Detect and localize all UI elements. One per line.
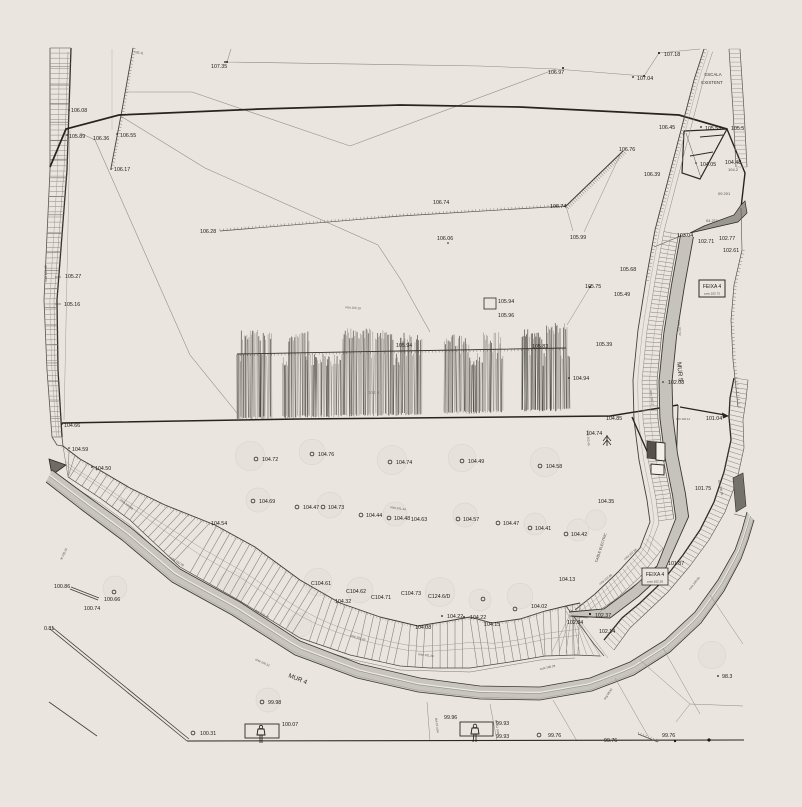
svg-text:cota 105.60: cota 105.60	[44, 265, 48, 282]
svg-text:105.53: 105.53	[705, 126, 721, 132]
svg-text:99.93: 99.93	[496, 734, 509, 740]
svg-text:cota 102.20: cota 102.20	[647, 580, 663, 584]
svg-text:99.76: 99.76	[548, 733, 561, 739]
svg-text:105.99: 105.99	[570, 235, 586, 241]
svg-text:105.5: 105.5	[731, 126, 744, 132]
svg-text:104.50: 104.50	[95, 466, 111, 472]
svg-text:102.84: 102.84	[567, 620, 583, 626]
svg-text:104.08: 104.08	[415, 625, 431, 631]
svg-text:107.35: 107.35	[211, 64, 227, 70]
svg-text:ESCALA: ESCALA	[704, 72, 721, 77]
svg-text:105.96: 105.96	[498, 313, 514, 319]
svg-text:105.68: 105.68	[620, 267, 636, 273]
svg-text:104.58: 104.58	[546, 464, 562, 470]
svg-text:100.86: 100.86	[54, 584, 70, 590]
svg-text:C104.61: C104.61	[311, 581, 331, 587]
svg-text:104.41: 104.41	[535, 526, 551, 532]
svg-text:104.32: 104.32	[335, 599, 351, 605]
svg-text:106.74: 106.74	[433, 200, 449, 206]
svg-text:C104.62: C104.62	[346, 589, 366, 595]
svg-text:104.48: 104.48	[394, 516, 410, 522]
svg-text:106.08: 106.08	[71, 108, 87, 114]
svg-text:100 102.12: 100 102.12	[676, 417, 690, 421]
svg-text:100.66: 100.66	[104, 597, 120, 603]
svg-text:105.94: 105.94	[396, 343, 412, 349]
svg-text:102.71: 102.71	[698, 239, 714, 245]
svg-text:104.47: 104.47	[303, 505, 319, 511]
svg-text:106.36: 106.36	[93, 136, 109, 142]
svg-text:104.66: 104.66	[64, 423, 80, 429]
svg-text:104.76: 104.76	[318, 452, 334, 458]
svg-text:99.98: 99.98	[268, 700, 281, 706]
svg-text:C124.6/D: C124.6/D	[428, 594, 451, 600]
svg-text:101.75: 101.75	[695, 486, 711, 492]
svg-text:103.04: 103.04	[677, 233, 693, 239]
svg-text:04 211: 04 211	[706, 218, 719, 223]
svg-text:105.16: 105.16	[64, 302, 80, 308]
svg-text:99.96: 99.96	[444, 715, 457, 721]
svg-text:105.83: 105.83	[532, 344, 548, 350]
svg-text:cota 102.72: cota 102.72	[704, 292, 720, 296]
svg-text:106.45: 106.45	[659, 125, 675, 131]
svg-text:FEIXA 4: FEIXA 4	[646, 572, 665, 578]
svg-text:104.22: 104.22	[470, 615, 486, 621]
svg-text:104.73: 104.73	[328, 505, 344, 511]
svg-text:104.57: 104.57	[463, 517, 479, 523]
svg-text:105.39: 105.39	[596, 342, 612, 348]
svg-text:99.76: 99.76	[604, 738, 617, 744]
svg-text:104.2: 104.2	[728, 167, 739, 172]
svg-text:106.39: 106.39	[644, 172, 660, 178]
svg-text:101.87: 101.87	[668, 561, 684, 567]
svg-text:FEIXA 4: FEIXA 4	[703, 284, 722, 290]
svg-text:105.49: 105.49	[614, 292, 630, 298]
svg-text:105.94: 105.94	[498, 299, 514, 305]
svg-text:99.76: 99.76	[662, 733, 675, 739]
svg-text:C104.73: C104.73	[401, 591, 421, 597]
svg-text:100.31: 100.31	[200, 731, 216, 737]
svg-text:106.97: 106.97	[548, 70, 564, 76]
svg-text:104.63: 104.63	[411, 517, 427, 523]
svg-text:107.18: 107.18	[664, 52, 680, 58]
svg-text:EXISTENT: EXISTENT	[701, 80, 723, 85]
svg-text:09 201: 09 201	[718, 191, 731, 196]
svg-text:104.02: 104.02	[531, 604, 547, 610]
svg-text:99.93: 99.93	[496, 721, 509, 727]
svg-text:104.05: 104.05	[700, 162, 716, 168]
svg-text:106.28: 106.28	[200, 229, 216, 235]
svg-text:104.42: 104.42	[571, 532, 587, 538]
svg-text:105.75: 105.75	[585, 284, 601, 290]
svg-text:104.54: 104.54	[211, 521, 227, 527]
svg-text:104.69: 104.69	[259, 499, 275, 505]
svg-text:100.74: 100.74	[84, 606, 100, 612]
svg-text:102.77: 102.77	[719, 236, 735, 242]
svg-text:104.48: 104.48	[725, 160, 741, 166]
svg-text:102.61: 102.61	[723, 248, 739, 254]
svg-text:104.93: 104.93	[368, 390, 382, 395]
svg-text:104.59: 104.59	[72, 447, 88, 453]
svg-text:104.47: 104.47	[503, 521, 519, 527]
svg-text:106.55: 106.55	[120, 133, 136, 139]
svg-text:104.13: 104.13	[559, 577, 575, 583]
svg-text:104.44: 104.44	[366, 513, 382, 519]
svg-text:104.94: 104.94	[573, 376, 589, 382]
svg-text:102.37: 102.37	[595, 613, 611, 619]
svg-text:106.76: 106.76	[619, 147, 635, 153]
svg-text:0.81: 0.81	[44, 626, 54, 632]
svg-text:104.85: 104.85	[606, 416, 622, 422]
svg-text:104.35: 104.35	[598, 499, 614, 505]
svg-text:106.17: 106.17	[114, 167, 130, 173]
svg-text:101.04: 101.04	[706, 416, 722, 422]
svg-text:105.27: 105.27	[65, 274, 81, 280]
svg-text:104.15: 104.15	[484, 622, 500, 628]
svg-text:102.08: 102.08	[668, 380, 684, 386]
svg-text:104.74: 104.74	[396, 460, 412, 466]
svg-text:98.3: 98.3	[722, 674, 732, 680]
svg-text:105.89: 105.89	[69, 134, 85, 140]
svg-text:104.49: 104.49	[468, 459, 484, 465]
svg-text:106.74: 106.74	[550, 204, 566, 210]
svg-text:C104.71: C104.71	[371, 595, 391, 601]
svg-text:104.22: 104.22	[447, 614, 463, 620]
svg-text:104.72: 104.72	[262, 457, 278, 463]
svg-text:100.07: 100.07	[282, 722, 298, 728]
svg-text:102.14: 102.14	[599, 629, 615, 635]
svg-text:104.74: 104.74	[586, 431, 602, 437]
svg-text:106.06: 106.06	[437, 236, 453, 242]
svg-text:107.04: 107.04	[637, 76, 653, 82]
